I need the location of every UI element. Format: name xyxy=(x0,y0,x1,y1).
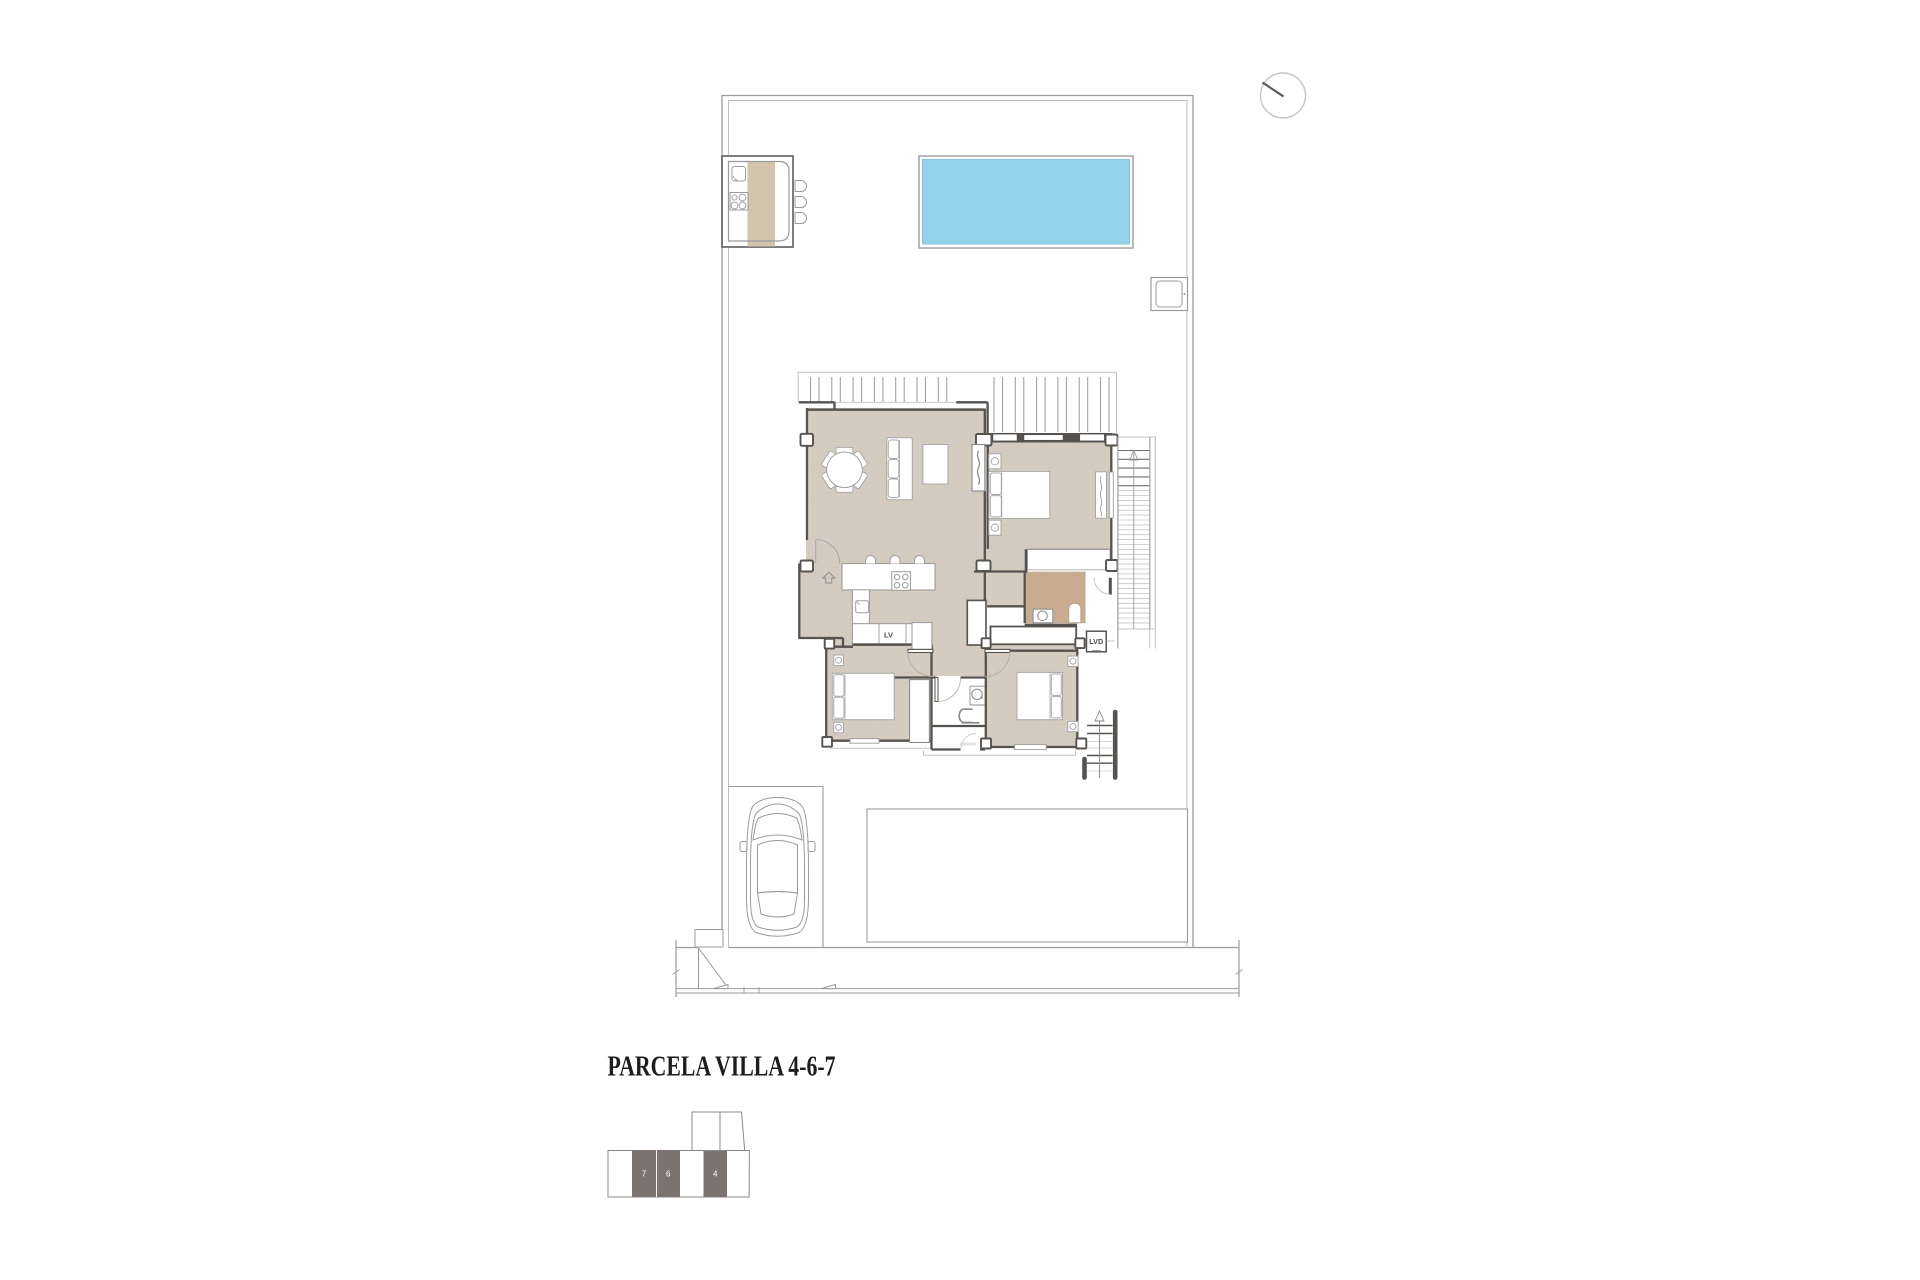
svg-text:7: 7 xyxy=(642,1170,647,1179)
svg-text:6: 6 xyxy=(666,1170,671,1179)
svg-text:LVD: LVD xyxy=(1089,637,1103,646)
svg-text:PARCELA VILLA 4-6-7: PARCELA VILLA 4-6-7 xyxy=(608,1052,836,1083)
svg-text:4: 4 xyxy=(713,1170,718,1179)
svg-text:LV: LV xyxy=(884,631,893,640)
